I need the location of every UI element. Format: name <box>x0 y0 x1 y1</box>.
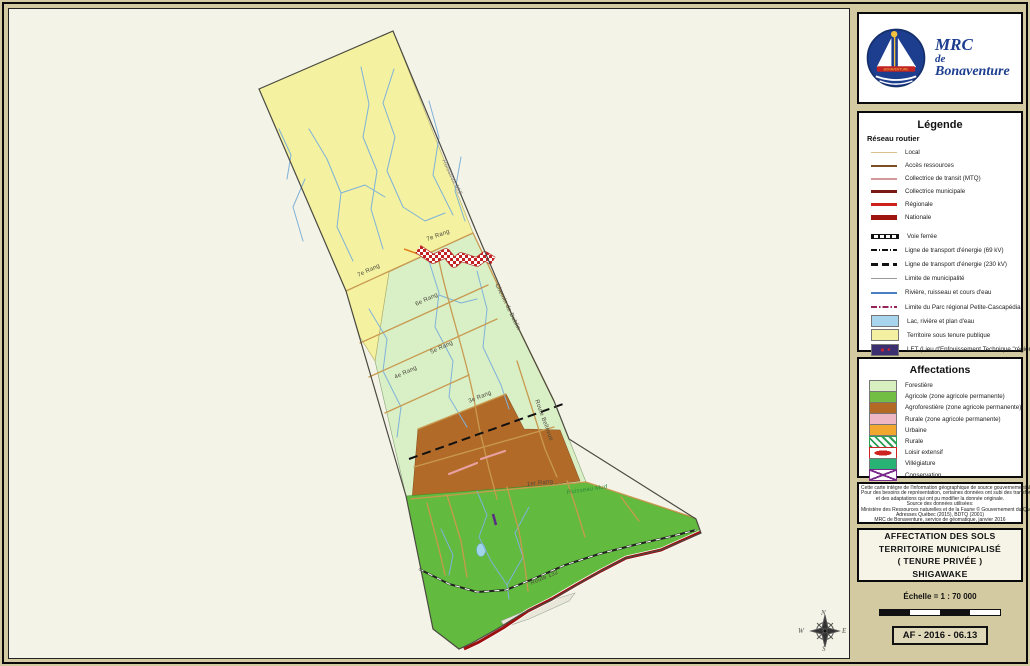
public-tenure-fill <box>871 329 899 341</box>
road-legend-item-row: Accès ressources <box>859 159 1021 172</box>
source-note-box: Cette carte intègre de l'information géo… <box>857 482 1023 524</box>
legend-item-row: Limite du Parc régional Petite-Cascapédi… <box>859 300 1021 314</box>
map-panel: 7e Rang7e Rang6e Rang5e Rang4e Rang3e Ra… <box>8 8 850 659</box>
other-legend-items: Voie ferréeLigne de transport d'énergie … <box>859 229 1021 357</box>
urbaine-fill <box>869 424 897 436</box>
affectation-item-row: Conservation <box>859 470 1021 481</box>
road-legend-item-row: Collectrice municipale <box>859 185 1021 198</box>
reference-code: AF - 2016 - 06.13 <box>892 626 988 645</box>
affectation-item-row: Loisir extensif <box>859 447 1021 458</box>
affectation-item-label: Rurale <box>905 438 923 445</box>
conservation-pattern <box>869 469 897 481</box>
road-legend-item-label: Régionale <box>905 201 933 208</box>
map-title-line4: SHIGAWAKE <box>859 568 1021 581</box>
agricole-fill <box>869 391 897 403</box>
road-local-line <box>871 152 897 154</box>
affectation-item-row: Agricole (zone agricole permanente) <box>859 391 1021 402</box>
scale-text: Échelle = 1 : 70 000 <box>857 592 1023 601</box>
rurale-hatch <box>869 436 897 448</box>
road-legend-item-label: Nationale <box>905 214 931 221</box>
road-national-line <box>871 215 897 220</box>
scale-bar <box>879 609 1001 616</box>
affectation-item-row: Urbaine <box>859 425 1021 436</box>
railway-line <box>871 234 899 239</box>
legend-item-row: Territoire sous tenure publique <box>859 328 1021 342</box>
municipal-limit-line <box>871 278 897 280</box>
legend-item-row: LET (Lieu d'Enfouissement Technique "rég… <box>859 343 1021 357</box>
legend-item-label: Limite de municipalité <box>905 275 965 282</box>
legend-item-row: Lac, rivière et plan d'eau <box>859 314 1021 328</box>
legend-item-row: Rivière, ruisseau et cours d'eau <box>859 286 1021 300</box>
map-title-line1: AFFECTATION DES SOLS <box>859 530 1021 543</box>
svg-text:BONAVENTURE: BONAVENTURE <box>884 67 910 71</box>
road-legend-item-row: Local <box>859 146 1021 159</box>
legend-item-row: Ligne de transport d'énergie (230 kV) <box>859 257 1021 271</box>
legend-item-label: Voie ferrée <box>907 233 937 240</box>
source-note-line: MRC de Bonaventure, service de géomatiqu… <box>861 518 1019 523</box>
legend-item-row: Limite de municipalité <box>859 272 1021 286</box>
legend-title: Légende <box>859 119 1021 131</box>
compass-letter: N <box>821 609 826 617</box>
road-legend-item-label: Accès ressources <box>905 162 954 169</box>
mrc-bonaventure-logo-icon: BONAVENTURE <box>863 25 929 91</box>
legend-item-label: Rivière, ruisseau et cours d'eau <box>905 289 991 296</box>
affectation-item-row: Villégiature <box>859 458 1021 469</box>
road-resource-line <box>871 165 897 167</box>
legend-item-label: Ligne de transport d'énergie (69 kV) <box>905 247 1004 254</box>
legend-item-label: Limite du Parc régional Petite-Cascapédi… <box>905 304 1021 311</box>
logo-line3: Bonaventure <box>935 65 1010 80</box>
road-legend-item-row: Régionale <box>859 198 1021 211</box>
affectation-item-row: Agroforestière (zone agricole permanente… <box>859 402 1021 413</box>
road-legend-item-label: Local <box>905 149 920 156</box>
affectation-item-row: Rurale <box>859 436 1021 447</box>
villegiature-fill <box>869 458 897 470</box>
logo-text: MRC de Bonaventure <box>935 36 1010 80</box>
road-legend-item-row: Nationale <box>859 211 1021 224</box>
map-title-line2: TERRITOIRE MUNICIPALISÉ <box>859 543 1021 556</box>
legend-item-label: LET (Lieu d'Enfouissement Technique "rég… <box>907 346 1030 353</box>
road-legend-items: LocalAccès ressourcesCollectrice de tran… <box>859 146 1021 224</box>
powerline-230kv <box>871 263 897 266</box>
logo-box: BONAVENTURE MRC de Bonaventure <box>857 12 1023 104</box>
legend-item-row: Ligne de transport d'énergie (69 kV) <box>859 243 1021 257</box>
powerline-69kv <box>871 249 897 251</box>
affectation-item-row: Rurale (zone agricole permanente) <box>859 414 1021 425</box>
map-sheet-page: 7e Rang7e Rang6e Rang5e Rang4e Rang3e Ra… <box>0 0 1030 666</box>
forestiere-fill <box>869 380 897 392</box>
affectation-item-label: Rurale (zone agricole permanente) <box>905 416 1001 423</box>
legend-item-label: Territoire sous tenure publique <box>907 332 990 339</box>
compass-letter: W <box>798 627 804 635</box>
road-collector-municipal-line <box>871 190 897 193</box>
legend-box: Légende Réseau routier LocalAccès ressou… <box>857 111 1023 352</box>
road-legend-item-label: Collectrice municipale <box>905 188 965 195</box>
legend-item-label: Ligne de transport d'énergie (230 kV) <box>905 261 1007 268</box>
scale-area: Échelle = 1 : 70 000 AF - 2016 - 06.13 <box>857 586 1023 656</box>
affectation-item-label: Agroforestière (zone agricole permanente… <box>905 404 1021 411</box>
compass-letter: E <box>842 627 846 635</box>
map-canvas <box>9 9 849 658</box>
road-legend-item-row: Collectrice de transit (MTQ) <box>859 172 1021 185</box>
map-title-line3: ( TENURE PRIVÉE ) <box>859 555 1021 568</box>
affectation-item-label: Forestière <box>905 382 933 389</box>
road-network-section-title: Réseau routier <box>867 134 1021 143</box>
road-collector-mtq-line <box>871 178 897 180</box>
affectation-item-label: Loisir extensif <box>905 449 943 456</box>
affectation-items: ForestièreAgricole (zone agricole perman… <box>859 380 1021 481</box>
logo-line1: MRC <box>935 36 1010 54</box>
affectation-item-label: Agricole (zone agricole permanente) <box>905 393 1005 400</box>
affectation-item-row: Forestière <box>859 380 1021 391</box>
rurale-permanente-fill <box>869 413 897 425</box>
pond <box>477 544 486 557</box>
loisir-extensif-pattern <box>869 447 897 459</box>
map-title-box: AFFECTATION DES SOLS TERRITOIRE MUNICIPA… <box>857 528 1023 582</box>
agroforestiere-fill <box>869 402 897 414</box>
source-note-lines: Cette carte intègre de l'information géo… <box>861 486 1019 524</box>
affectation-item-label: Urbaine <box>905 427 927 434</box>
regional-park-limit-line <box>871 306 897 309</box>
affectation-item-label: Conservation <box>905 472 941 479</box>
affectation-item-label: Villégiature <box>905 460 936 467</box>
compass-rose-icon <box>811 615 839 647</box>
legend-item-label: Lac, rivière et plan d'eau <box>907 318 974 325</box>
river-line <box>871 292 897 294</box>
let-fill <box>871 344 899 356</box>
affectations-box: Affectations ForestièreAgricole (zone ag… <box>857 357 1023 478</box>
affectations-title: Affectations <box>859 364 1021 376</box>
water-fill <box>871 315 899 327</box>
compass-letter: S <box>822 645 826 653</box>
road-legend-item-label: Collectrice de transit (MTQ) <box>905 175 981 182</box>
legend-item-row: Voie ferrée <box>859 229 1021 243</box>
road-regional-line <box>871 203 897 207</box>
